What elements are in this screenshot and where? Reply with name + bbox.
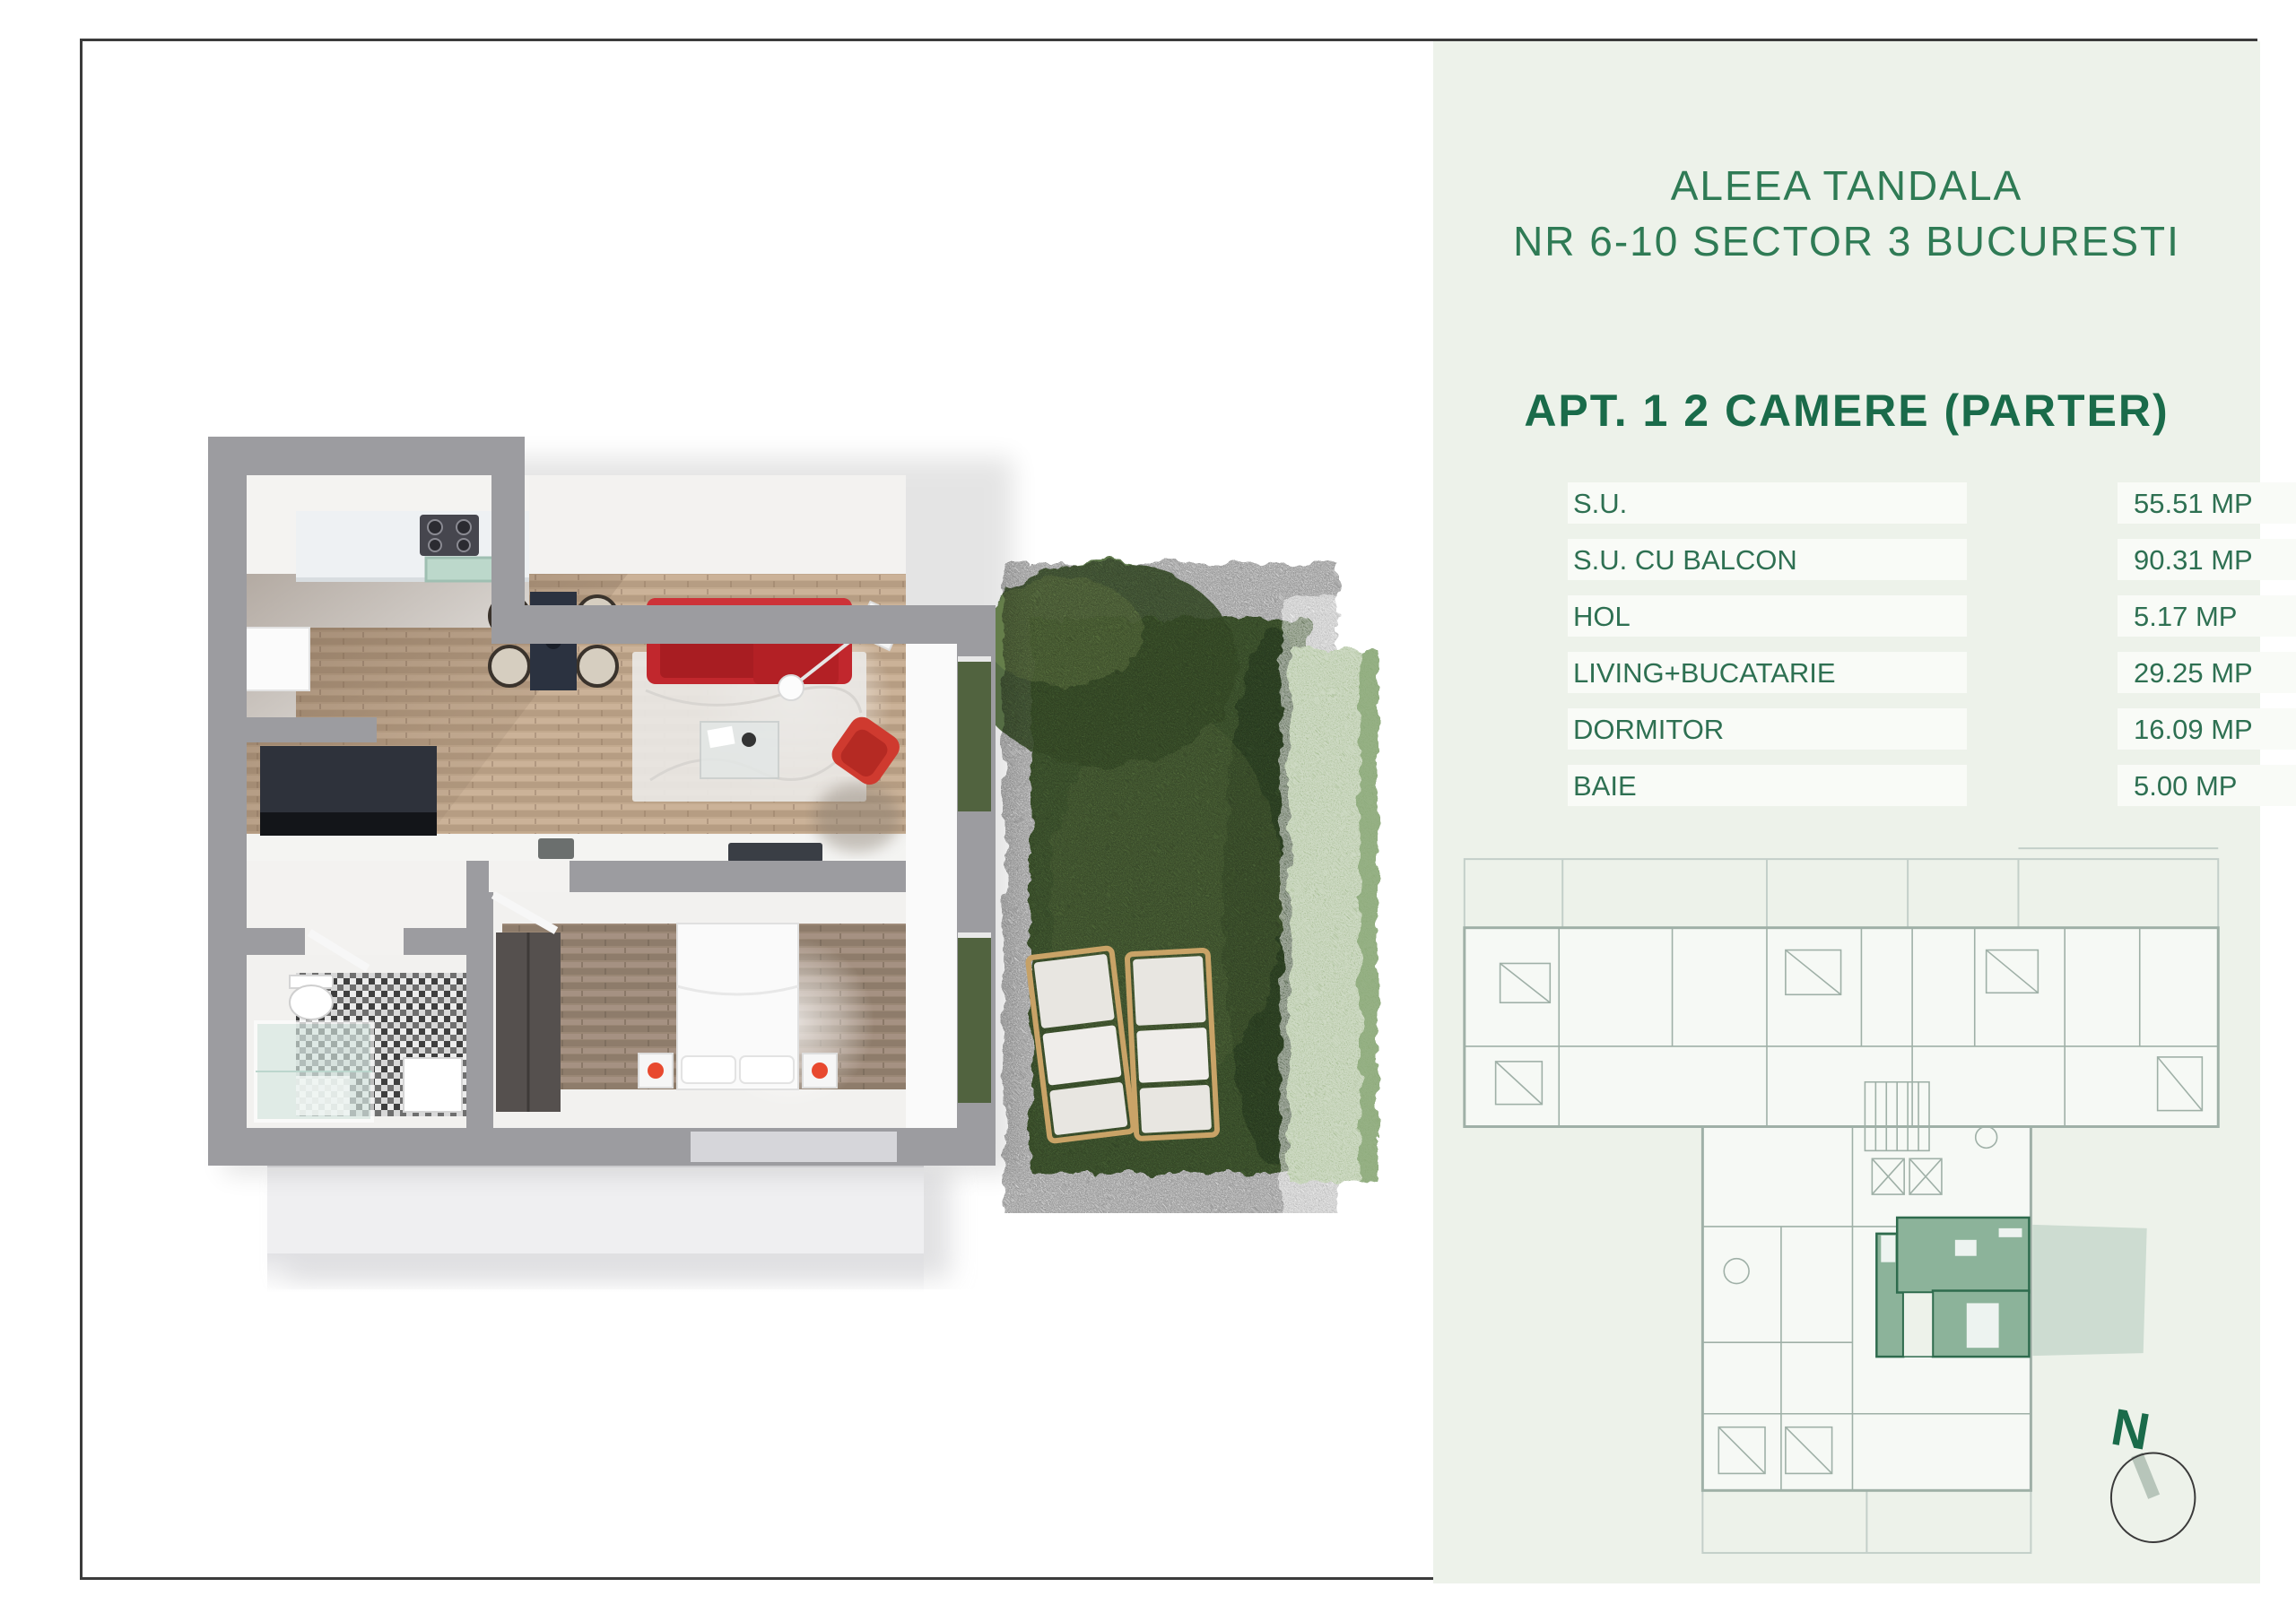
kitchen-sink [426, 558, 499, 581]
private-garden-patch [2032, 1225, 2146, 1356]
area-value: 29.25 MP [2134, 652, 2253, 693]
project-address: ALEEA TANDALA NR 6-10 SECTOR 3 BUCURESTI [1433, 158, 2260, 269]
nightstand-right [803, 1054, 837, 1088]
toilet [290, 976, 333, 1019]
address-line-2: NR 6-10 SECTOR 3 BUCURESTI [1433, 213, 2260, 269]
terrace [267, 1164, 951, 1293]
table-row: HOL 5.17 MP [1568, 595, 2160, 637]
unit-kitchen [1881, 1236, 1895, 1262]
compass-needle [2137, 1455, 2154, 1497]
address-line-1: ALEEA TANDALA [1433, 158, 2260, 213]
area-value: 55.51 MP [2134, 482, 2253, 524]
right-wall-inner-face [906, 644, 957, 1128]
area-label: S.U. CU BALCON [1573, 539, 1797, 580]
cooktop [420, 515, 479, 556]
kitchen-island [260, 746, 437, 836]
area-value: 90.31 MP [2134, 539, 2253, 580]
table-row: BAIE 5.00 MP [1568, 765, 2160, 806]
brochure-page: ALEEA TANDALA NR 6-10 SECTOR 3 BUCURESTI… [0, 0, 2296, 1622]
table-row: S.U. 55.51 MP [1568, 482, 2160, 524]
living-window [958, 656, 991, 811]
area-value: 5.17 MP [2134, 595, 2237, 637]
coffee-table [700, 722, 778, 778]
north-compass: N [2107, 1399, 2195, 1542]
area-label: S.U. [1573, 482, 1627, 524]
area-value: 16.09 MP [2134, 708, 2253, 750]
area-label: HOL [1573, 595, 1631, 637]
label-stripe [1568, 482, 1967, 524]
areas-table: S.U. 55.51 MP S.U. CU BALCON 90.31 MP HO… [1568, 482, 2160, 821]
area-label: LIVING+BUCATARIE [1573, 652, 1836, 693]
tv-console [728, 843, 822, 863]
building-site-plan: N [1433, 843, 2263, 1574]
area-label: DORMITOR [1573, 708, 1724, 750]
area-label: BAIE [1573, 765, 1637, 806]
table-row: S.U. CU BALCON 90.31 MP [1568, 539, 2160, 580]
bedroom-window [958, 932, 991, 1103]
floor-plan-3d [161, 395, 1417, 1309]
bathroom-sink [404, 1058, 462, 1112]
doormat [538, 838, 574, 859]
table-row: DORMITOR 16.09 MP [1568, 708, 2160, 750]
wall-living-bedroom [570, 861, 906, 892]
info-panel: ALEEA TANDALA NR 6-10 SECTOR 3 BUCURESTI… [1433, 41, 2260, 1583]
garden [969, 560, 1378, 1182]
unit-bathroom [1903, 1292, 1933, 1357]
unit-bed [1967, 1303, 1999, 1348]
highlighted-apartment [1876, 1218, 2029, 1357]
unit-table [1955, 1240, 1977, 1256]
table-row: LIVING+BUCATARIE 29.25 MP [1568, 652, 2160, 693]
wardrobe [496, 932, 561, 1112]
balcony-door [691, 1132, 897, 1162]
nightstand-left [639, 1054, 673, 1088]
compass-circle [2111, 1453, 2195, 1542]
area-value: 5.00 MP [2134, 765, 2237, 806]
shower [256, 1022, 372, 1121]
wall-hall-bathroom [404, 928, 466, 955]
wall-bathroom-bedroom [466, 892, 493, 1128]
compass-north-label: N [2107, 1399, 2153, 1462]
bed [677, 924, 798, 1089]
apartment-title: APT. 1 2 CAMERE (PARTER) [1433, 384, 2260, 438]
bedside-lamp-icon [648, 1063, 664, 1079]
bedside-lamp-icon [812, 1063, 828, 1079]
unit-sofa [1999, 1228, 2022, 1237]
building-outline [1465, 928, 2218, 1491]
